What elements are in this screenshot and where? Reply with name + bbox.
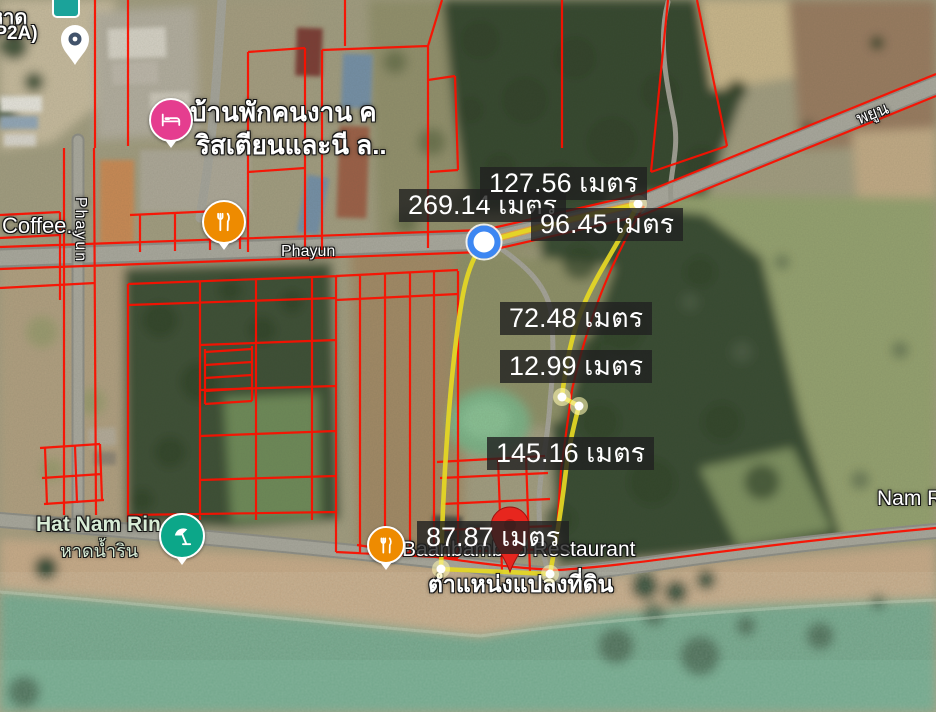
satellite-base xyxy=(0,0,936,712)
map-canvas[interactable]: หาด (P2A) บ้านพักคนงาน ค ริสเตียนและนี ล… xyxy=(0,0,936,712)
